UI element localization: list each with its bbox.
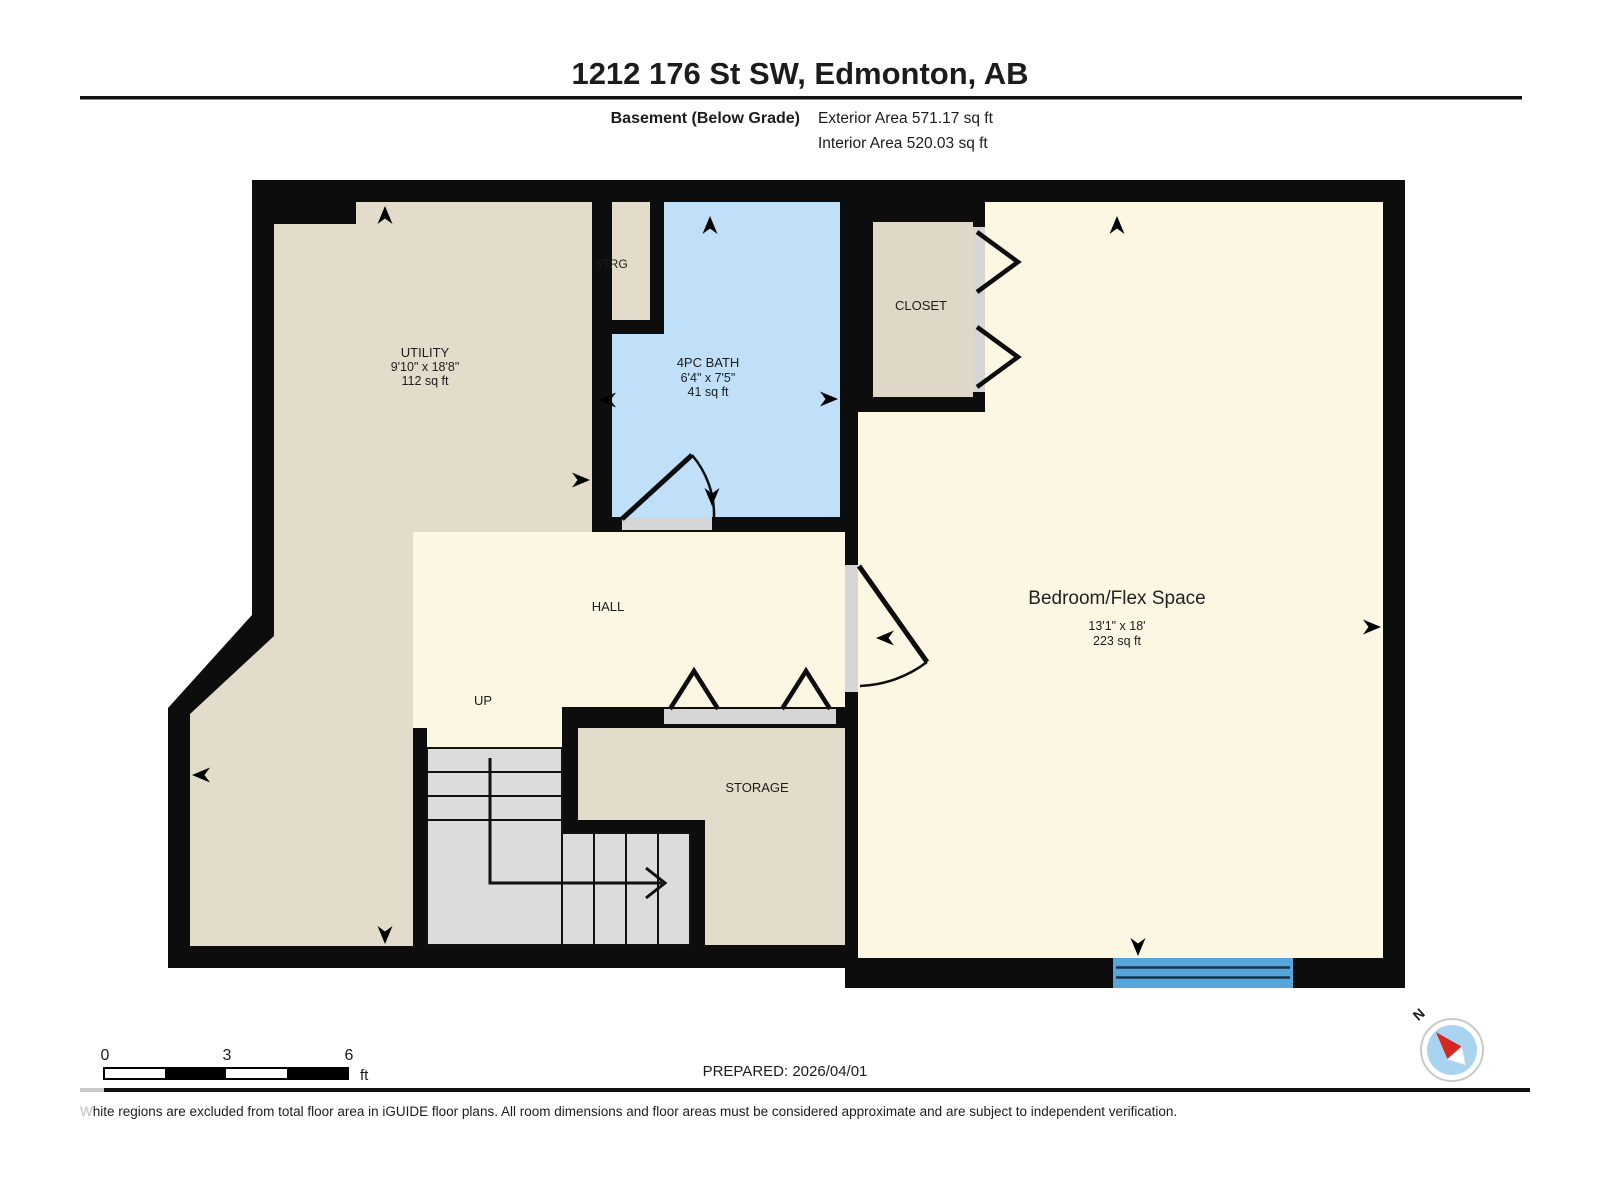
utility-dimensions: 9'10" x 18'8" bbox=[391, 360, 460, 374]
floor-label: Basement (Below Grade) bbox=[611, 110, 800, 127]
closet-door-jamb bbox=[973, 227, 985, 392]
scale-tick-3: 3 bbox=[223, 1047, 232, 1064]
footer-rule-lead bbox=[80, 1088, 104, 1092]
bedroom-dimensions: 13'1" x 18' bbox=[1088, 619, 1145, 633]
prepared-date: PREPARED: 2026/04/01 bbox=[703, 1063, 868, 1080]
footer-rule bbox=[104, 1088, 1530, 1092]
page-title: 1212 176 St SW, Edmonton, AB bbox=[571, 56, 1028, 91]
floorplan-page: 1212 176 St SW, Edmonton, AB Basement (B… bbox=[0, 0, 1600, 1200]
floorplan-canvas: 1212 176 St SW, Edmonton, AB Basement (B… bbox=[0, 0, 1600, 1200]
disclaimer-text: White regions are excluded from total fl… bbox=[80, 1104, 1177, 1119]
bath-label: 4PC BATH bbox=[677, 355, 740, 370]
bedroom-area: 223 sq ft bbox=[1093, 634, 1141, 648]
compass-icon bbox=[1421, 1019, 1483, 1081]
up-label: UP bbox=[474, 693, 492, 708]
compass-north-label: N bbox=[1410, 1005, 1428, 1024]
utility-label: UTILITY bbox=[401, 345, 450, 360]
strg-label: STRG bbox=[594, 257, 627, 271]
storage-door-jamb bbox=[664, 709, 836, 724]
bedroom-door-jamb bbox=[845, 565, 858, 692]
bedroom-label: Bedroom/Flex Space bbox=[1028, 588, 1205, 609]
bath-door-jamb bbox=[622, 517, 712, 530]
disclaimer-body: hite regions are excluded from total flo… bbox=[93, 1104, 1177, 1119]
storage-label: STORAGE bbox=[725, 780, 789, 795]
stair-upper-treads bbox=[427, 748, 562, 820]
disclaimer-lead: W bbox=[80, 1104, 93, 1119]
utility-area: 112 sq ft bbox=[401, 374, 449, 388]
bath-dimensions: 6'4" x 7'5" bbox=[681, 371, 736, 385]
closet-label: CLOSET bbox=[895, 298, 947, 313]
interior-area-label: Interior Area 520.03 sq ft bbox=[818, 135, 988, 152]
exterior-area-label: Exterior Area 571.17 sq ft bbox=[818, 110, 994, 127]
scale-tick-0: 0 bbox=[101, 1047, 110, 1064]
header-rule bbox=[80, 96, 1522, 100]
hall-label: HALL bbox=[592, 599, 625, 614]
bath-area: 41 sq ft bbox=[688, 385, 730, 399]
scale-unit: ft bbox=[360, 1067, 369, 1084]
scale-tick-6: 6 bbox=[345, 1047, 354, 1064]
bedroom-window bbox=[1113, 958, 1293, 988]
scale-bar: 0 3 6 ft bbox=[101, 1047, 370, 1084]
